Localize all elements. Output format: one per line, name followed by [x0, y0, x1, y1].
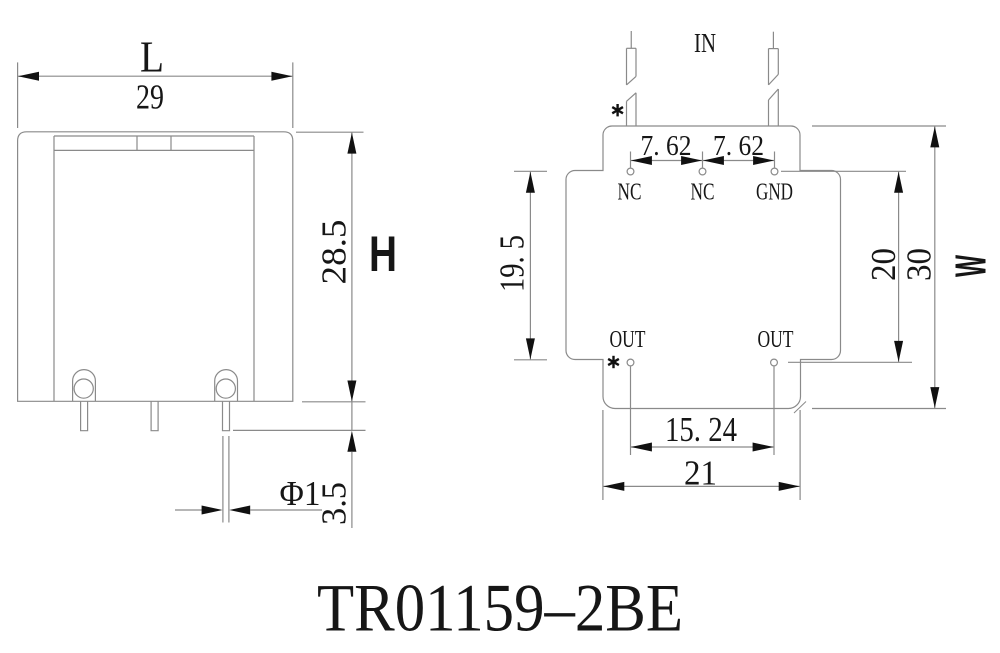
svg-text:IN: IN: [694, 28, 716, 58]
svg-text:GND: GND: [756, 179, 793, 206]
svg-text:OUT: OUT: [610, 326, 646, 353]
svg-text:NC: NC: [691, 179, 715, 206]
svg-text:NC: NC: [618, 179, 642, 206]
svg-text:29: 29: [136, 78, 164, 117]
svg-text:OUT: OUT: [758, 326, 794, 353]
svg-text:21: 21: [684, 454, 717, 493]
svg-text:19. 5: 19. 5: [493, 235, 532, 292]
svg-text:TR01159–2BE: TR01159–2BE: [317, 570, 683, 646]
svg-text:28.5: 28.5: [315, 220, 354, 285]
svg-text:20: 20: [864, 248, 903, 281]
svg-text:15. 24: 15. 24: [665, 410, 737, 449]
svg-text:7. 62: 7. 62: [641, 130, 692, 162]
svg-text:Φ1: Φ1: [280, 474, 321, 513]
svg-text:L: L: [140, 33, 164, 82]
svg-text:W: W: [947, 255, 996, 277]
svg-text:30: 30: [900, 248, 939, 281]
svg-text:7. 62: 7. 62: [713, 130, 764, 162]
svg-text:H: H: [369, 225, 397, 282]
